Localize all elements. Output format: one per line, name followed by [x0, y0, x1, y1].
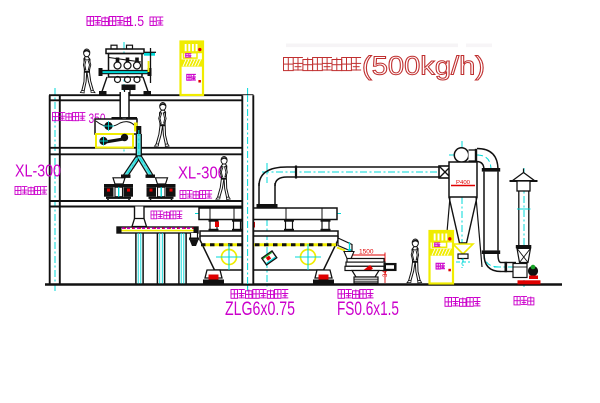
svg-text:P400: P400 — [456, 180, 470, 186]
svg-text:FS0.6x1.5: FS0.6x1.5 — [337, 299, 399, 320]
svg-text:ZLG6x0.75: ZLG6x0.75 — [225, 299, 295, 320]
svg-text:(500kg/h): (500kg/h) — [362, 51, 485, 81]
svg-text:1500: 1500 — [359, 249, 374, 256]
svg-text:1.5: 1.5 — [127, 13, 144, 30]
svg-text:XL-300: XL-300 — [178, 163, 226, 183]
svg-text:XL-300: XL-300 — [15, 161, 61, 181]
